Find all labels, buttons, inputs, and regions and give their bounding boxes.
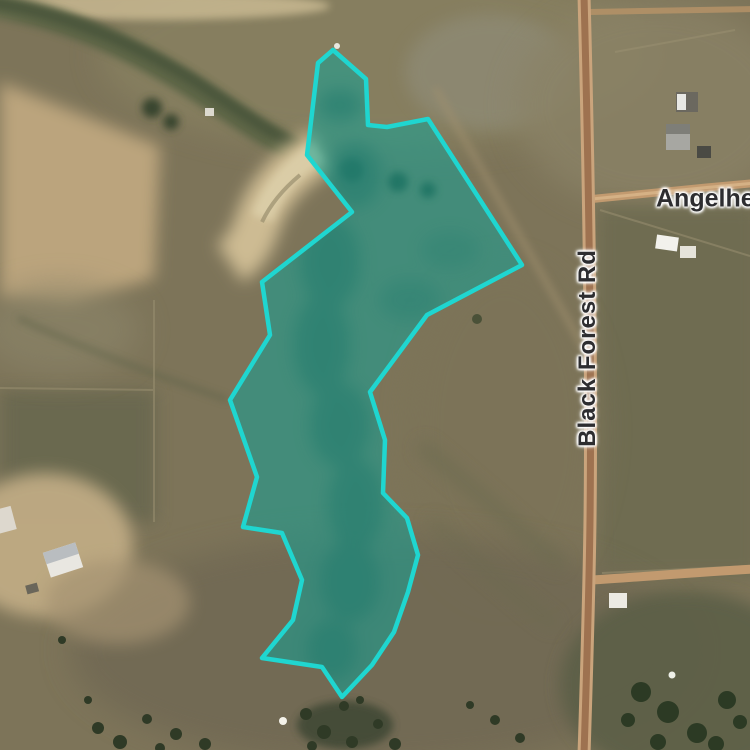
satellite-terrain (0, 0, 750, 750)
map-canvas[interactable]: Black Forest Rd Angelhea (0, 0, 750, 750)
